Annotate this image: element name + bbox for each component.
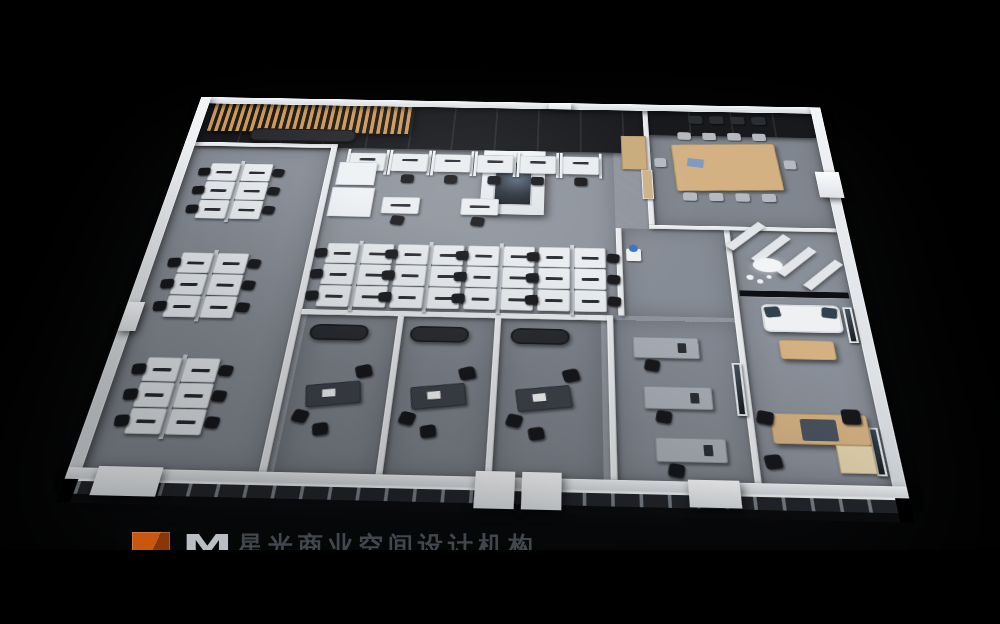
conference-chair: [783, 160, 797, 169]
office-chair: [378, 292, 391, 302]
carrel-desk: [562, 156, 599, 174]
wood-door: [641, 170, 654, 200]
workstation-desk: [206, 274, 244, 296]
admin-desk: [655, 437, 728, 463]
printer-cabinet: [335, 162, 378, 186]
office-chair: [606, 253, 620, 263]
office-sofa: [510, 328, 569, 345]
carrel-desk: [476, 155, 514, 173]
letterbox-bar: [0, 550, 1000, 624]
reception-bench: [248, 128, 357, 142]
conference-chair: [683, 192, 698, 200]
workstation-desk: [315, 285, 352, 307]
workstation-desk: [199, 296, 238, 318]
workstation-desk: [463, 288, 497, 310]
conference-chair: [735, 193, 750, 201]
copier: [326, 187, 375, 217]
conference-chair: [702, 133, 716, 141]
workstation-desk: [176, 252, 214, 273]
office-chair: [456, 251, 469, 261]
workstation-desk: [212, 253, 249, 274]
office-chair: [305, 290, 319, 300]
office-chair: [451, 293, 465, 303]
facade-pilaster: [89, 466, 163, 497]
office-chair: [574, 177, 587, 186]
desk-paper: [323, 388, 336, 397]
workstation-desk: [467, 246, 500, 267]
carrel-desk: [433, 154, 471, 172]
workstation-desk: [538, 268, 571, 289]
office-chair: [314, 248, 327, 258]
watermark-text: 星光商业空间设计机构: [238, 529, 538, 550]
facade-pilaster: [521, 472, 562, 510]
facade-pilaster: [688, 480, 743, 509]
guest-chair: [527, 427, 545, 441]
office-chair: [655, 410, 673, 425]
workstation-desk: [162, 295, 201, 317]
conference-chair: [752, 134, 767, 142]
workstation-desk: [574, 248, 606, 269]
workstation-desk: [141, 357, 183, 382]
workstation-desk: [169, 273, 208, 295]
admin-desk: [644, 386, 714, 410]
single-desk: [380, 197, 420, 214]
pendant-bulb: [746, 275, 754, 280]
office-chair: [525, 273, 539, 283]
desk-paper: [427, 391, 441, 400]
office-chair: [487, 176, 501, 185]
watermark: M 星光商业空间设计机构: [116, 526, 636, 550]
room-corridor: [621, 228, 734, 318]
conference-chair: [677, 132, 691, 140]
workstation-desk: [395, 244, 429, 265]
workstation-desk: [392, 265, 427, 286]
stacked-chair: [688, 116, 703, 124]
workstation-desk: [537, 289, 570, 311]
storage-cabinet: [621, 136, 648, 170]
conference-table: [671, 144, 785, 191]
stacked-chair: [730, 117, 745, 125]
workstation-desk: [164, 409, 207, 436]
office-chair: [310, 269, 324, 279]
office-chair: [382, 270, 395, 280]
workstation-desk: [132, 382, 175, 408]
workstation-desk: [240, 164, 274, 182]
workstation-desk: [574, 290, 607, 312]
floorplan: [56, 97, 915, 523]
workstation-desk: [320, 263, 356, 284]
conference-chair: [654, 158, 666, 167]
office-chair: [454, 271, 468, 281]
office-chair: [531, 177, 544, 186]
workstation-desk: [324, 243, 359, 264]
carrel-partition: [556, 153, 559, 178]
east-wall-block: [815, 172, 845, 198]
workstation-desk: [228, 200, 263, 219]
stacked-chair: [709, 116, 724, 124]
workstation-desk: [574, 268, 606, 290]
workstation-desk: [194, 200, 230, 219]
conference-chair: [761, 194, 776, 202]
watermark-letter: M: [182, 528, 233, 550]
office-chair: [444, 175, 458, 184]
coffee-table: [778, 340, 837, 360]
single-desk: [460, 198, 499, 215]
workstation-desk: [172, 383, 214, 409]
office-chair: [524, 295, 538, 305]
office-chair: [607, 296, 621, 307]
render-stage: M 星光商业空间设计机构: [0, 0, 1000, 624]
desk-inlay: [799, 419, 839, 442]
workstation-desk: [234, 182, 269, 201]
office-sofa: [409, 326, 469, 343]
office-chair: [400, 174, 414, 183]
carrel-desk: [390, 153, 429, 171]
pendant-bulb: [757, 279, 764, 283]
workstation-desk: [200, 181, 235, 200]
desk-paper: [533, 393, 547, 402]
carrel-partition: [599, 154, 602, 179]
guest-chair: [419, 424, 436, 438]
office-chair: [526, 252, 540, 262]
watermark-logo-icon: [132, 532, 170, 550]
sofa-pillow: [822, 307, 838, 319]
north-wall-tab: [549, 103, 572, 110]
workstation-desk: [465, 266, 499, 287]
guest-chair: [312, 422, 328, 436]
office-chair: [644, 359, 661, 373]
office-sofa: [308, 324, 369, 341]
desk-return: [836, 445, 879, 474]
workstation-desk: [206, 163, 241, 181]
table-document: [687, 158, 704, 168]
conference-chair: [727, 133, 741, 141]
admin-desk: [633, 337, 700, 359]
sofa-pillow: [763, 306, 782, 318]
water-cooler: [626, 249, 641, 262]
executive-chair: [840, 409, 862, 425]
carrel-desk: [519, 156, 556, 174]
office-chair: [607, 274, 621, 285]
facade-pilaster: [473, 471, 515, 509]
office-chair: [668, 463, 686, 479]
workstation-desk: [180, 358, 221, 383]
conference-chair: [709, 193, 724, 201]
pendant-bulb: [766, 275, 772, 279]
workstation-desk: [389, 286, 424, 308]
office-chair: [385, 249, 398, 259]
workstation-desk: [538, 247, 570, 268]
stacked-chair: [751, 117, 766, 125]
